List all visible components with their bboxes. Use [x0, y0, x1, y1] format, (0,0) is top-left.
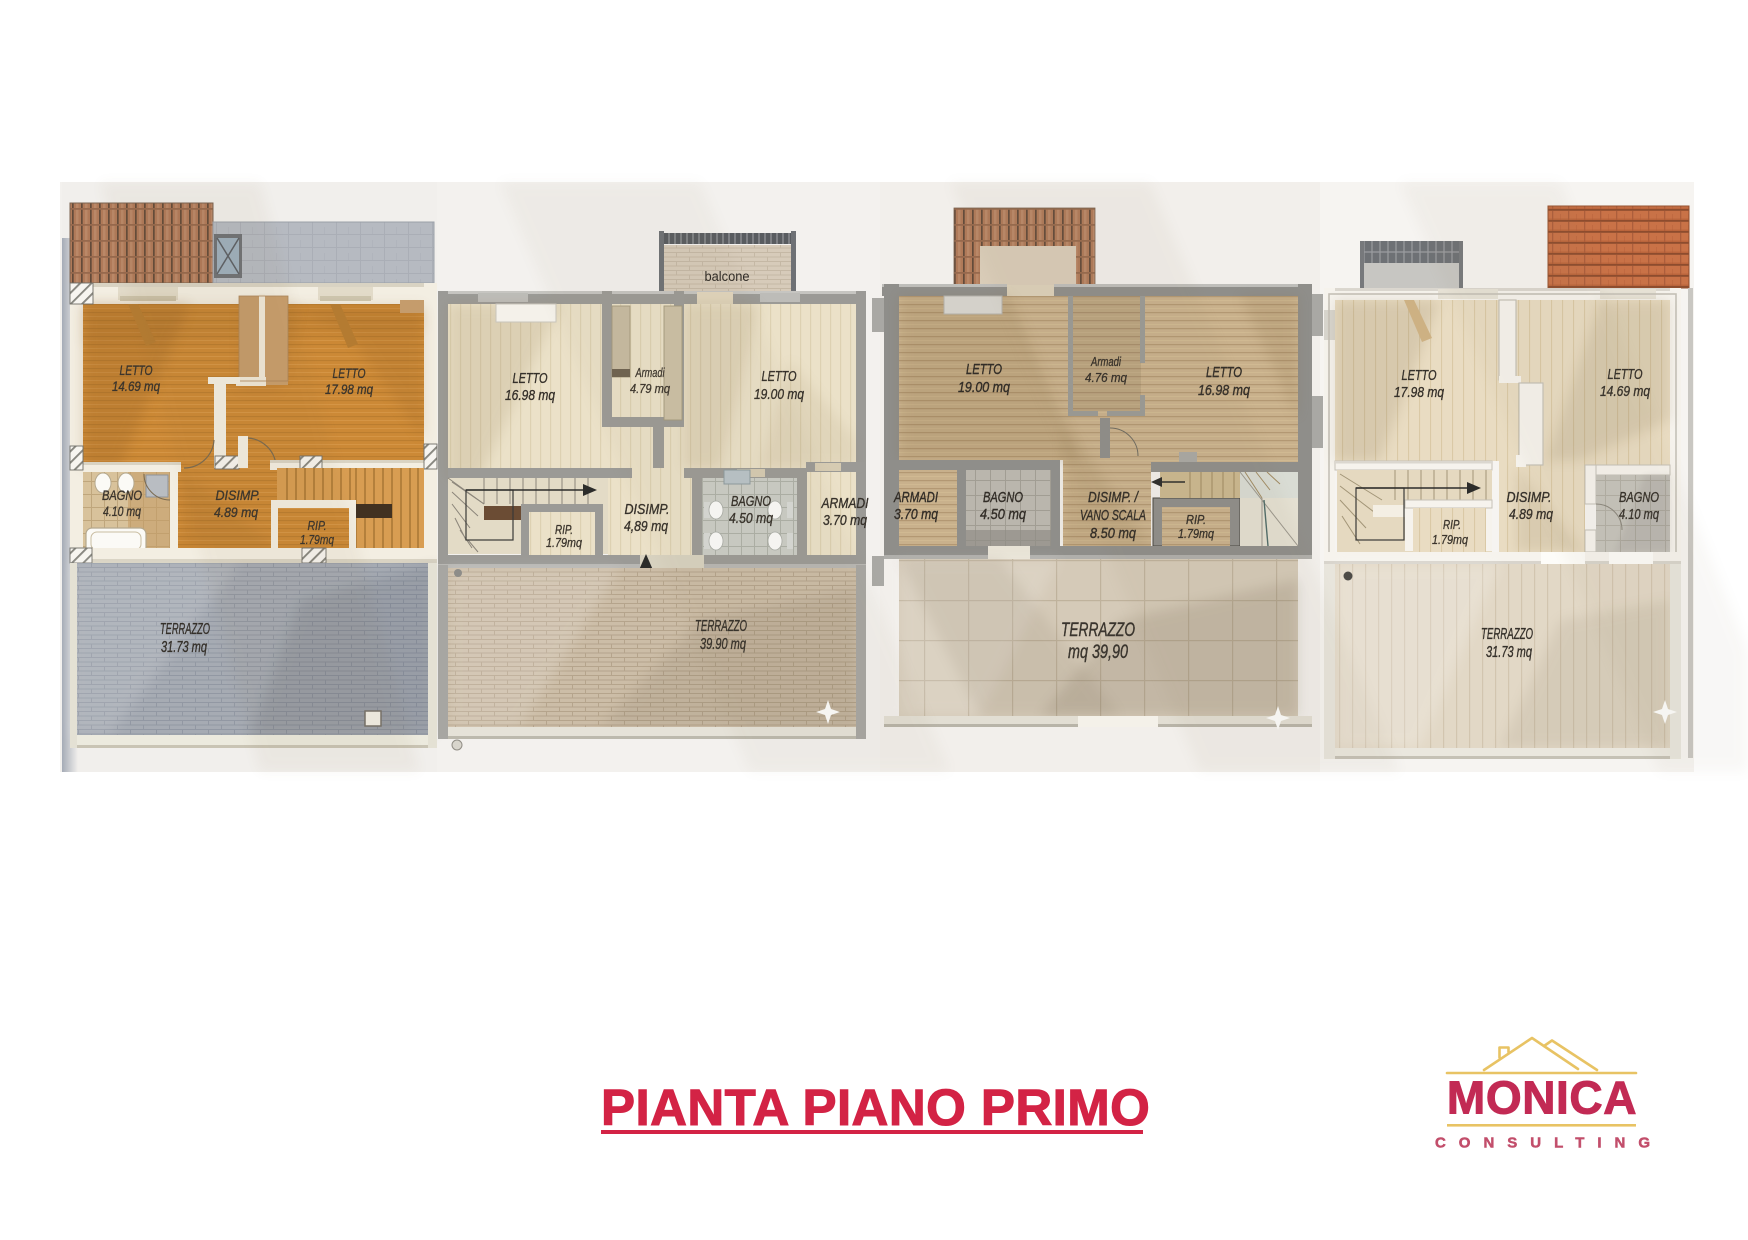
svg-text:TERRAZZO: TERRAZZO [160, 621, 210, 638]
svg-text:LETTO: LETTO [120, 362, 153, 378]
svg-text:TERRAZZO: TERRAZZO [1061, 620, 1135, 641]
svg-text:BAGNO: BAGNO [102, 487, 142, 503]
svg-text:31.73 mq: 31.73 mq [1486, 644, 1532, 661]
svg-text:4.10 mq: 4.10 mq [103, 503, 141, 519]
svg-text:TERRAZZO: TERRAZZO [1481, 626, 1533, 643]
svg-text:RIP.: RIP. [1443, 518, 1461, 532]
svg-text:14.69 mq: 14.69 mq [112, 378, 160, 394]
svg-text:1.79mq: 1.79mq [1432, 533, 1468, 547]
svg-text:17.98 mq: 17.98 mq [325, 381, 373, 397]
svg-text:16.98 mq: 16.98 mq [505, 388, 555, 404]
svg-text:BAGNO: BAGNO [983, 489, 1023, 506]
svg-text:LETTO: LETTO [1402, 368, 1437, 384]
svg-text:19.00 mq: 19.00 mq [958, 379, 1011, 396]
svg-text:mq 39,90: mq 39,90 [1068, 642, 1128, 663]
svg-text:3.70 mq: 3.70 mq [894, 506, 939, 523]
svg-text:ARMADI: ARMADI [893, 489, 938, 506]
svg-text:31.73 mq: 31.73 mq [161, 639, 207, 656]
svg-text:1.79mq: 1.79mq [546, 536, 582, 550]
svg-text:PIANTA PIANO PRIMO: PIANTA PIANO PRIMO [601, 1079, 1150, 1136]
svg-text:17.98 mq: 17.98 mq [1394, 385, 1444, 401]
svg-text:LETTO: LETTO [966, 361, 1002, 378]
svg-text:LETTO: LETTO [513, 371, 548, 387]
svg-text:4.50 mq: 4.50 mq [980, 506, 1027, 523]
svg-text:RIP.: RIP. [555, 523, 573, 537]
svg-text:CONSULTING: CONSULTING [1435, 1135, 1663, 1152]
svg-text:MONICA: MONICA [1447, 1072, 1637, 1124]
svg-text:LETTO: LETTO [333, 365, 366, 381]
